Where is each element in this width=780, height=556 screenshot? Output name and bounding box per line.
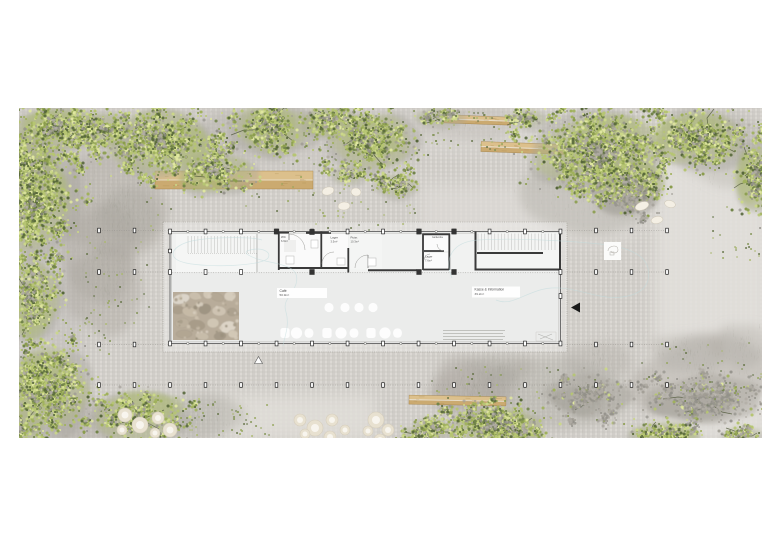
svg-text:Garderobe: Garderobe <box>432 236 444 239</box>
svg-text:10.3m²: 10.3m² <box>351 239 359 243</box>
svg-text:Lager: Lager <box>331 236 338 240</box>
svg-text:3.5m²: 3.5m² <box>331 239 338 243</box>
svg-text:7.6m²: 7.6m² <box>425 258 432 262</box>
svg-text:Café: Café <box>280 289 287 293</box>
svg-text:50.9m²: 50.9m² <box>280 293 290 297</box>
svg-text:Lager: Lager <box>425 255 432 259</box>
svg-text:6.6m²: 6.6m² <box>281 239 288 243</box>
svg-text:Putzr.: Putzr. <box>351 236 359 240</box>
svg-text:WC: WC <box>281 235 286 239</box>
svg-text:Kasse & Information: Kasse & Information <box>475 288 505 292</box>
svg-text:39.2m²: 39.2m² <box>475 292 485 296</box>
